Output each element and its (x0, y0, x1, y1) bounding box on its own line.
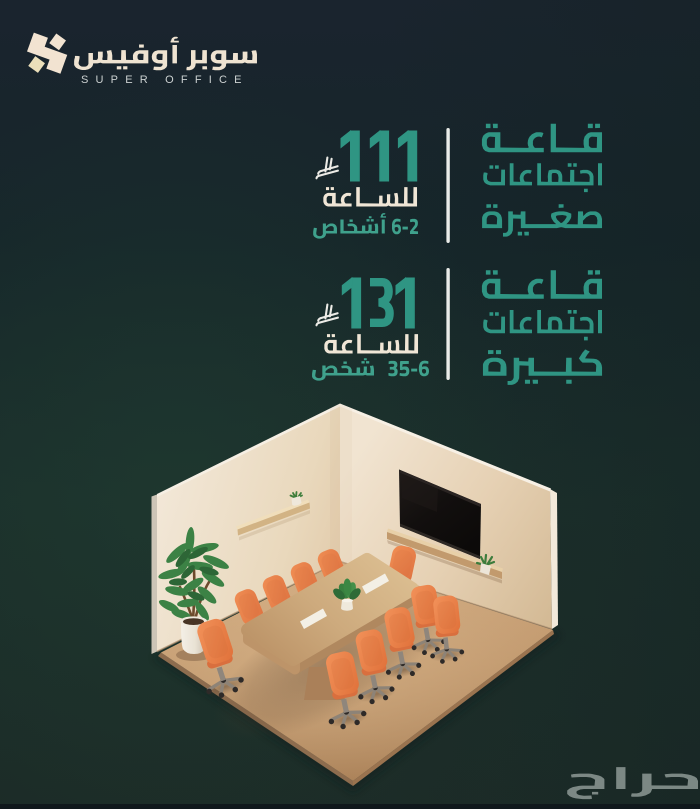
svg-text:SUPER OFFICE: SUPER OFFICE (81, 74, 249, 86)
